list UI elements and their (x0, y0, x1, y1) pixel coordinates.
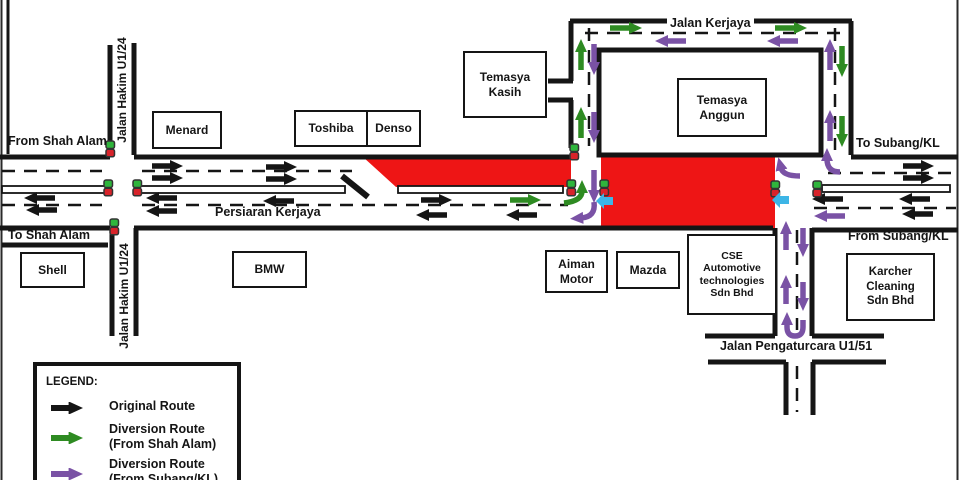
label-to-subang: To Subang/KL (856, 137, 940, 151)
building-label: Cleaning (866, 280, 915, 295)
building-cse: CSE Automotive technologies Sdn Bhd (687, 234, 777, 315)
legend-item-green: Diversion Route (From Shah Alam) (109, 422, 216, 452)
label-to-shah-alam: To Shah Alam (8, 229, 90, 243)
road-medians (2, 185, 950, 193)
closure-zone-west (363, 157, 571, 187)
building-label: Denso (375, 121, 412, 136)
legend-item-sublabel: (From Shah Alam) (109, 437, 216, 452)
building-label: Kasih (489, 85, 522, 100)
label-jalan-pengaturcara: Jalan Pengaturcara U1/51 (720, 340, 872, 354)
building-menard: Menard (152, 111, 222, 149)
building-label: Karcher (869, 265, 912, 280)
traffic-light-icon (570, 144, 579, 160)
building-temasya-kasih: Temasya Kasih (463, 51, 547, 118)
building-denso: Denso (366, 110, 421, 147)
building-label: Anggun (699, 108, 744, 123)
building-label: Shell (38, 263, 67, 278)
building-label: BMW (255, 262, 285, 277)
legend-item-sublabel: (From Subang/KL) (109, 472, 218, 480)
building-label: Menard (166, 123, 209, 138)
traffic-light-icon (106, 141, 115, 157)
label-jalan-hakim-lower: Jalan Hakim U1/24 (117, 241, 131, 351)
legend-item-original: Original Route (109, 399, 195, 414)
building-label: Temasya (480, 70, 530, 85)
traffic-light-icon (104, 180, 113, 196)
closure-zone-east (601, 155, 775, 228)
building-label: CSE (721, 250, 743, 262)
legend-title: LEGEND: (46, 376, 98, 388)
legend-item-label: Diversion Route (109, 457, 218, 472)
building-label: Sdn Bhd (710, 287, 753, 299)
diversion-purple-arrow-icon (49, 468, 89, 480)
legend: LEGEND: Original Route Diversion Route (… (33, 362, 241, 480)
building-label: Aiman (558, 257, 595, 272)
building-label: Toshiba (308, 121, 353, 136)
diversion-map: From Shah Alam To Shah Alam To Subang/KL… (0, 0, 960, 480)
traffic-light-icon (133, 180, 142, 196)
diversion-green-arrow-icon (49, 432, 89, 444)
building-label: Mazda (630, 263, 667, 278)
building-label: Automotive (703, 262, 761, 274)
legend-item-label: Diversion Route (109, 422, 216, 437)
label-jalan-kerjaya: Jalan Kerjaya (667, 17, 754, 31)
building-mazda: Mazda (616, 251, 680, 289)
building-label: technologies (700, 275, 765, 287)
legend-item-purple: Diversion Route (From Subang/KL) (109, 457, 218, 480)
original-route-arrow-icon (49, 402, 89, 414)
traffic-light-icon (567, 180, 576, 196)
building-karcher: Karcher Cleaning Sdn Bhd (846, 253, 935, 321)
label-from-shah-alam: From Shah Alam (8, 135, 107, 149)
label-jalan-hakim-upper: Jalan Hakim U1/24 (115, 35, 129, 145)
traffic-light-icon (110, 219, 119, 235)
traffic-light-icon (813, 181, 822, 197)
building-toshiba: Toshiba (294, 110, 368, 147)
building-temasya-anggun: Temasya Anggun (677, 78, 767, 137)
building-shell: Shell (20, 252, 85, 288)
building-aiman-motor: Aiman Motor (545, 250, 608, 293)
building-bmw: BMW (232, 251, 307, 288)
building-label: Temasya (697, 93, 747, 108)
label-persiaran-kerjaya: Persiaran Kerjaya (215, 206, 321, 220)
building-label: Sdn Bhd (867, 294, 914, 309)
building-label: Motor (560, 272, 593, 287)
label-from-subang: From Subang/KL (848, 230, 949, 244)
traffic-light-icon (600, 180, 609, 196)
